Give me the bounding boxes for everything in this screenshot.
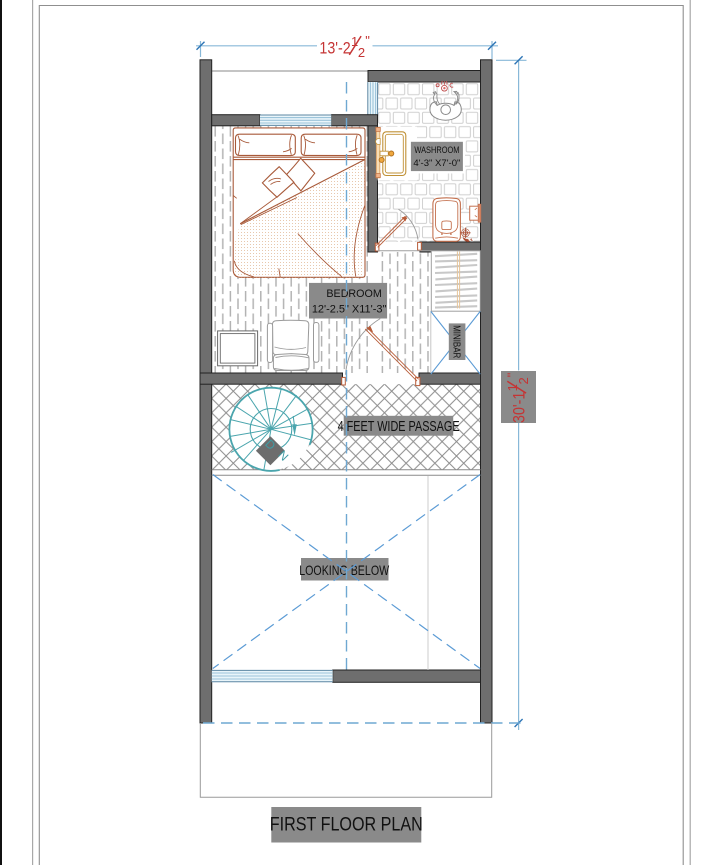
svg-text:30'-1: 30'-1: [510, 392, 529, 423]
svg-text:MINIBAR: MINIBAR: [451, 325, 462, 358]
svg-text:4 FEET WIDE PASSAGE: 4 FEET WIDE PASSAGE: [338, 419, 460, 435]
svg-text:FIRST FLOOR PLAN: FIRST FLOOR PLAN: [270, 813, 423, 835]
svg-text:WASHROOM: WASHROOM: [414, 145, 459, 155]
svg-text:": ": [504, 372, 519, 377]
svg-text:2: 2: [516, 377, 531, 384]
svg-text:": ": [365, 33, 370, 48]
svg-text:BEDROOM: BEDROOM: [326, 288, 381, 300]
svg-text:4'-3" X7'-0": 4'-3" X7'-0": [413, 158, 460, 168]
svg-text:12'-2.5" X11'-3": 12'-2.5" X11'-3": [312, 303, 387, 315]
svg-text:13'-2: 13'-2: [319, 39, 350, 58]
svg-text:2: 2: [358, 45, 365, 60]
